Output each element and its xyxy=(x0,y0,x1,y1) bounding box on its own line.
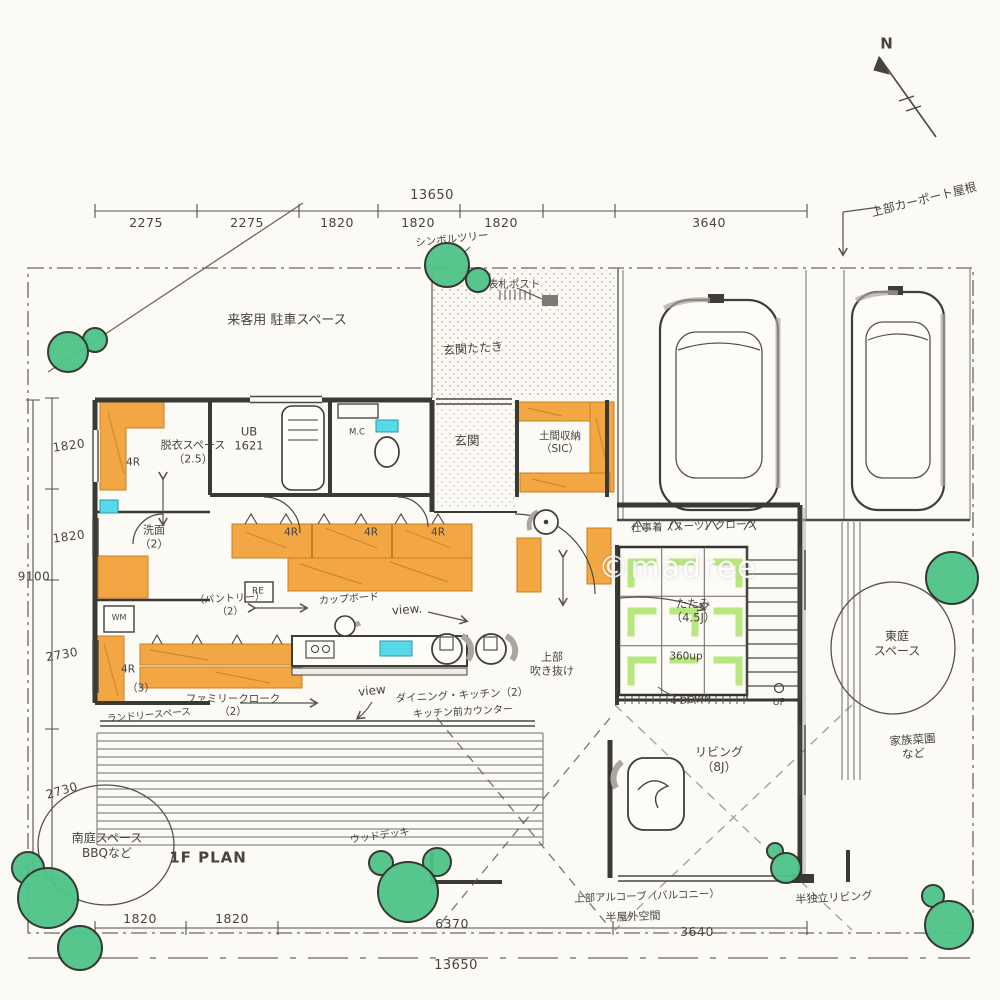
wood-deck-planks xyxy=(97,733,543,845)
floor-plan-drawing xyxy=(0,0,1000,1000)
floor-plan-page: N136502275227518201820182036401820182091… xyxy=(0,0,1000,1000)
car-1 xyxy=(660,294,778,510)
entrance-porch xyxy=(432,247,617,508)
east-fence xyxy=(842,522,860,780)
stairs xyxy=(747,547,800,700)
car-2 xyxy=(852,286,944,510)
tatami-room xyxy=(619,547,747,704)
north-arrow-icon xyxy=(874,57,936,137)
carport xyxy=(617,268,970,520)
